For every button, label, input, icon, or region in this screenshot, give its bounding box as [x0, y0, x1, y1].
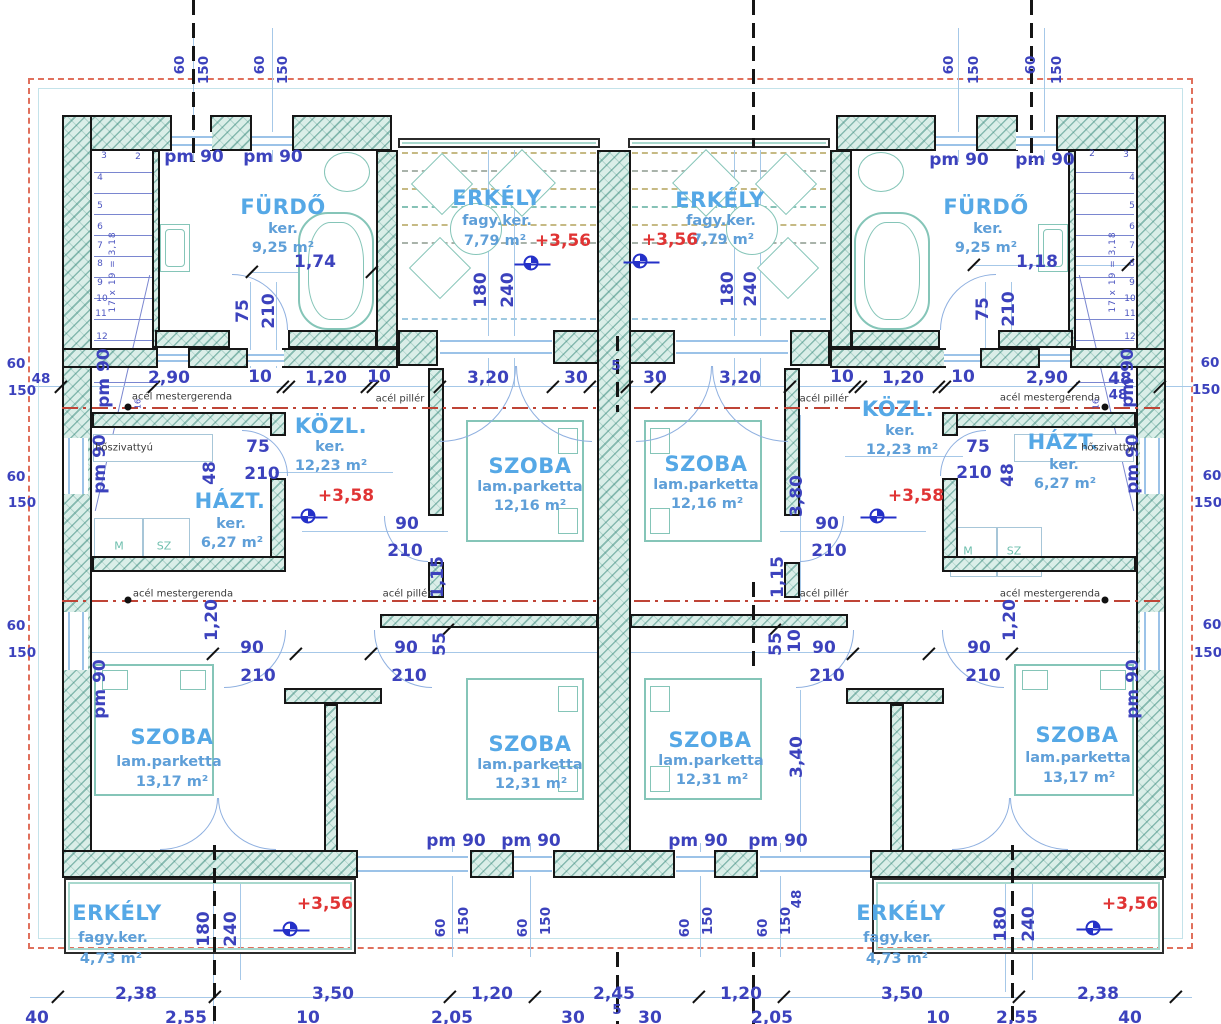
- wall: [282, 348, 398, 368]
- dim: 3,20: [719, 368, 761, 388]
- room-hazt-left-title: HÁZT.: [195, 489, 266, 513]
- door-dim: 90: [812, 638, 836, 658]
- section-axis: [1030, 0, 1033, 162]
- bed-pillow: [1022, 670, 1048, 690]
- beam-axis-dot: [125, 597, 132, 604]
- window-glass-line: [1144, 438, 1146, 494]
- stair-step-number: 10: [1124, 294, 1135, 304]
- wall: [470, 850, 514, 878]
- window-sill-height: pm 90: [164, 147, 223, 167]
- room-erkely-bl-sub: fagy.ker.: [78, 930, 148, 946]
- dim: 48: [998, 463, 1018, 487]
- stair-step-number: 9: [1129, 278, 1135, 288]
- room-szoba-ct-right-title: SZOBA: [665, 452, 748, 476]
- dim: 60: [677, 919, 693, 938]
- elevation-mark: +3,58: [318, 486, 374, 506]
- wall: [62, 850, 358, 878]
- dim: 150: [1194, 495, 1221, 511]
- section-axis: [752, 0, 755, 148]
- window: [64, 438, 88, 494]
- window-glass-line: [1016, 144, 1056, 146]
- stair-step-number: 12: [1124, 332, 1135, 342]
- wall: [870, 850, 1166, 878]
- appliance-washer: M: [114, 540, 124, 553]
- note-heat-pump: hőszivattyú: [95, 443, 153, 454]
- room-szoba-ct-right-floor: lam.parketta: [653, 477, 758, 493]
- dim: 240: [741, 271, 761, 307]
- wall: [188, 348, 248, 368]
- room-hazt-right-ker: ker.: [1049, 457, 1079, 473]
- dim: 150: [8, 495, 36, 511]
- dim: 240: [498, 272, 518, 308]
- window-glass-line: [68, 438, 70, 494]
- dim: 1,74: [294, 252, 336, 272]
- door-dim: 90: [815, 514, 839, 534]
- wall: [324, 704, 338, 854]
- dim: 150: [456, 907, 472, 935]
- dim: 3,20: [467, 368, 509, 388]
- room-szoba-bl-area: 13,17 m²: [136, 774, 208, 790]
- dim: 60: [1203, 617, 1221, 633]
- dim: 75: [233, 299, 253, 323]
- room-szoba-cb-right-floor: lam.parketta: [658, 753, 763, 769]
- room-kozl-right-title: KÖZL.: [862, 397, 934, 421]
- door-dim: 90: [967, 638, 991, 658]
- wall: [942, 412, 1136, 428]
- dim: 40: [1118, 1008, 1142, 1024]
- dim: 1,20: [1000, 599, 1020, 641]
- window: [514, 852, 552, 876]
- room-szoba-ct-left-floor: lam.parketta: [477, 479, 582, 495]
- window: [64, 612, 88, 670]
- appliance-washer: M: [963, 545, 973, 558]
- dim: 3,50: [881, 984, 923, 1004]
- stair-step-number: 11: [1124, 309, 1135, 319]
- door-dim: 90: [394, 638, 418, 658]
- dim: 150: [1049, 56, 1065, 84]
- floor-plan-canvas: FÜRDŐker.9,25 m²FÜRDŐker.9,25 m²ERKÉLYfa…: [0, 0, 1221, 1024]
- window-glass-line: [936, 144, 976, 146]
- window: [1140, 438, 1164, 494]
- stair-step-number: 5: [97, 201, 103, 211]
- elevation-benchmark-icon: [283, 922, 298, 937]
- bed-pillow: [650, 508, 670, 534]
- dim: 1,18: [1016, 252, 1058, 272]
- room-kozl-right-area: 12,23 m²: [866, 442, 938, 458]
- dim: 10: [830, 367, 854, 387]
- window-glass-line: [1040, 354, 1070, 356]
- window-glass-line: [514, 856, 552, 858]
- stair-step-number: 6: [1129, 222, 1135, 232]
- window-sill-height: pm 90: [243, 147, 302, 167]
- section-axis: [1011, 845, 1014, 1024]
- dim: 3,40: [787, 736, 807, 778]
- dim: 1,20: [471, 984, 513, 1004]
- stair-formula: 17 x 19 = 3,18: [108, 231, 118, 312]
- window-sill-height: pm 90: [929, 150, 988, 170]
- room-furdo-left-title: FÜRDŐ: [240, 195, 325, 219]
- dim: 60: [1203, 468, 1221, 484]
- stair-step-number: 3: [101, 151, 107, 161]
- wall: [714, 850, 758, 878]
- note-heat-pump: hőszivattyú: [1081, 443, 1139, 454]
- balcony-edge-dashed: [402, 318, 596, 320]
- stair-step-number: 11: [95, 309, 106, 319]
- room-erkely-topright-title: ERKÉLY: [675, 188, 764, 212]
- window-sill-height: pm 90: [501, 831, 560, 851]
- stair-step-number: 4: [1129, 173, 1135, 183]
- window-sill-height: pm 90: [1015, 150, 1074, 170]
- window: [440, 336, 552, 358]
- window-sill-height: pm 90: [90, 659, 110, 718]
- room-furdo-right-ker: ker.: [973, 221, 1003, 237]
- room-erkely-topleft-area: 7,79 m²: [464, 233, 526, 249]
- window-glass-line: [944, 354, 980, 356]
- door-dim: 210: [956, 463, 992, 483]
- balcony-rail: [398, 138, 600, 148]
- window: [936, 132, 976, 150]
- room-szoba-br-title: SZOBA: [1036, 723, 1119, 747]
- dim: 16: [134, 399, 143, 409]
- dim: 150: [8, 383, 36, 399]
- note-steel-column: acél pillér: [383, 589, 432, 600]
- dim: 2,05: [431, 1008, 473, 1024]
- window: [760, 852, 870, 876]
- window-glass-line: [1158, 438, 1160, 494]
- dim: 1,20: [305, 368, 347, 388]
- sink: [160, 224, 190, 272]
- dim: 10: [785, 629, 805, 653]
- dim: 150: [1194, 645, 1221, 661]
- bed-pillow: [180, 670, 206, 690]
- dim: 2,90: [1026, 368, 1068, 388]
- note-steel-beam: acél mestergerenda: [133, 589, 233, 600]
- window-glass-line: [158, 354, 188, 356]
- wall: [790, 330, 830, 366]
- room-furdo-right-area: 9,25 m²: [955, 240, 1017, 256]
- dim: 2,55: [996, 1008, 1038, 1024]
- room-hazt-left-ker: ker.: [216, 516, 246, 532]
- window-glass-line: [676, 870, 714, 872]
- room-erkely-topright-area: 7,79 m²: [692, 232, 754, 248]
- dim: 180: [471, 272, 491, 308]
- dim: 60: [1201, 355, 1220, 371]
- dim: 2,45: [593, 984, 635, 1004]
- wall: [376, 150, 398, 348]
- stair-step-number: 12: [96, 332, 107, 342]
- dim: 240: [1019, 906, 1039, 942]
- wall: [210, 115, 252, 151]
- window-glass-line: [1016, 136, 1056, 138]
- dim: 60: [433, 919, 449, 938]
- wall: [380, 614, 598, 628]
- window-glass-line: [440, 340, 552, 342]
- elevation-benchmark-icon: [870, 509, 885, 524]
- dim: 5: [612, 1002, 621, 1018]
- balcony-awning-line: [402, 152, 596, 154]
- room-szoba-bl-title: SZOBA: [131, 725, 214, 749]
- window: [1016, 132, 1056, 150]
- window-glass-line: [252, 144, 292, 146]
- dim: 60: [252, 56, 268, 75]
- bathtub: [854, 212, 930, 330]
- elevation-benchmark-icon: [1086, 921, 1101, 936]
- room-erkely-br-area: 4,73 m²: [866, 951, 928, 967]
- door-dim: 210: [391, 666, 427, 686]
- window-glass-line: [158, 360, 188, 362]
- stair-step-number: 8: [97, 259, 103, 269]
- wall: [836, 115, 936, 151]
- elevation-benchmark-icon: [524, 256, 539, 271]
- wall: [630, 614, 848, 628]
- room-erkely-bl-title: ERKÉLY: [72, 901, 161, 925]
- section-axis: [616, 336, 619, 412]
- window-glass-line: [760, 856, 870, 858]
- window-sill-height: pm 90: [748, 831, 807, 851]
- window-sill-height: pm 90: [668, 831, 727, 851]
- dim: 180: [991, 906, 1011, 942]
- window-glass-line: [1158, 612, 1160, 670]
- dim: 10: [926, 1008, 950, 1024]
- dim: 150: [538, 907, 554, 935]
- window-sill-height: pm 90: [1123, 659, 1143, 718]
- dim: 10: [296, 1008, 320, 1024]
- wall: [398, 330, 438, 366]
- wall: [155, 330, 230, 348]
- window-glass-line: [358, 856, 468, 858]
- dim: 2,90: [148, 368, 190, 388]
- wall: [998, 330, 1073, 348]
- window: [944, 350, 980, 366]
- dim: 60: [941, 56, 957, 75]
- wall: [942, 556, 1136, 572]
- window-glass-line: [1040, 360, 1070, 362]
- room-szoba-cb-right-area: 12,31 m²: [676, 772, 748, 788]
- dim: 210: [259, 293, 279, 329]
- dim: 3,80: [787, 475, 807, 517]
- wall: [62, 115, 92, 878]
- note-steel-column: acél pillér: [800, 589, 849, 600]
- elevation-mark: +3,56: [297, 894, 353, 914]
- appliance-dryer: SZ: [1007, 545, 1022, 558]
- wall: [1068, 150, 1076, 348]
- dim: 150: [700, 907, 716, 935]
- dim: 150: [8, 645, 36, 661]
- window-glass-line: [936, 136, 976, 138]
- dim: 40: [25, 1008, 49, 1024]
- window-glass-line: [440, 352, 552, 354]
- dim: 55: [430, 632, 450, 656]
- dim: 16: [1092, 399, 1101, 409]
- room-kozl-left-ker: ker.: [315, 439, 345, 455]
- dim: 60: [7, 356, 26, 372]
- room-szoba-cb-left-floor: lam.parketta: [477, 757, 582, 773]
- stair-step-number: 9: [97, 278, 103, 288]
- dim: 30: [643, 368, 667, 388]
- dim: 2,55: [165, 1008, 207, 1024]
- door-dim: 90: [395, 514, 419, 534]
- dim: 60: [1023, 56, 1039, 75]
- window-glass-line: [68, 612, 70, 670]
- elevation-benchmark-icon: [633, 254, 648, 269]
- section-axis: [192, 0, 195, 162]
- door-dim: 210: [965, 666, 1001, 686]
- room-szoba-cb-right-title: SZOBA: [669, 728, 752, 752]
- elevation-mark: +3,58: [888, 486, 944, 506]
- room-szoba-ct-right-area: 12,16 m²: [671, 496, 743, 512]
- bed-pillow: [558, 686, 578, 712]
- room-erkely-br-title: ERKÉLY: [856, 901, 945, 925]
- stair-step-number: 7: [97, 241, 103, 251]
- dim: 10: [951, 367, 975, 387]
- dim: 60: [172, 56, 188, 75]
- window-glass-line: [676, 340, 788, 342]
- room-szoba-ct-left-area: 12,16 m²: [494, 498, 566, 514]
- door-dim: 210: [811, 541, 847, 561]
- door-dim: 75: [966, 437, 990, 457]
- stair-step-number: 7: [1129, 241, 1135, 251]
- note-steel-column: acél pillér: [800, 394, 849, 405]
- stair-step-number: 5: [1129, 201, 1135, 211]
- dim: 5: [611, 358, 620, 374]
- dim: 30: [638, 1008, 662, 1024]
- bed-pillow: [650, 766, 670, 792]
- balcony-awning-line: [632, 152, 826, 154]
- window-glass-line: [1144, 612, 1146, 670]
- dim: 1,15: [768, 556, 788, 598]
- door-dim: 90: [240, 638, 264, 658]
- wall: [292, 115, 392, 151]
- wall: [830, 150, 852, 348]
- dim: 150: [966, 56, 982, 84]
- dim: 150: [196, 56, 212, 84]
- elevation-mark: +3,56: [642, 230, 698, 250]
- wall: [980, 348, 1040, 368]
- dim: 60: [7, 618, 26, 634]
- stair-step-number: 4: [97, 173, 103, 183]
- section-axis: [752, 582, 755, 674]
- stair-step-number: 2: [1089, 149, 1095, 159]
- window: [248, 350, 284, 366]
- stair-formula: 17 x 19 = 3,18: [1108, 231, 1118, 312]
- appliance-dryer: SZ: [157, 540, 172, 553]
- window: [358, 852, 468, 876]
- window-sill-height: pm 90: [1118, 348, 1138, 407]
- room-szoba-cb-left-title: SZOBA: [489, 732, 572, 756]
- wall: [553, 850, 675, 878]
- window-sill-height: pm 90: [426, 831, 485, 851]
- dim: 55: [766, 632, 786, 656]
- wall: [942, 412, 958, 436]
- window-glass-line: [358, 870, 468, 872]
- balcony-edge-dashed: [632, 318, 826, 320]
- room-erkely-br-sub: fagy.ker.: [863, 930, 933, 946]
- dim: 30: [564, 368, 588, 388]
- room-szoba-bl-floor: lam.parketta: [116, 754, 221, 770]
- wall: [976, 115, 1018, 151]
- wall: [1136, 115, 1166, 878]
- bed-pillow: [650, 686, 670, 712]
- room-kozl-left-title: KÖZL.: [295, 414, 367, 438]
- elevation-mark: +3,56: [535, 231, 591, 251]
- window-sill-height: pm 90: [94, 348, 114, 407]
- steel-beam-axis: [62, 600, 600, 602]
- door-dim: 210: [387, 541, 423, 561]
- dim: 1,20: [202, 599, 222, 641]
- room-szoba-br-floor: lam.parketta: [1025, 750, 1130, 766]
- beam-axis-dot: [1102, 404, 1109, 411]
- wall: [851, 330, 940, 348]
- dim: 60: [755, 919, 771, 938]
- dim: 180: [718, 271, 738, 307]
- beam-axis-dot: [125, 404, 132, 411]
- dim: 3,50: [312, 984, 354, 1004]
- dim: 150: [778, 907, 794, 935]
- dim: 30: [561, 1008, 585, 1024]
- dim: 75: [973, 297, 993, 321]
- note-steel-beam: acél mestergerenda: [1000, 393, 1100, 404]
- window-glass-line: [82, 612, 84, 670]
- note-steel-beam: acél mestergerenda: [1000, 589, 1100, 600]
- door-dim: 210: [244, 464, 280, 484]
- steel-beam-axis: [62, 407, 600, 409]
- dim: 10: [248, 367, 272, 387]
- wall: [284, 688, 382, 704]
- elevation-benchmark-icon: [301, 509, 316, 524]
- wall: [830, 348, 946, 368]
- wall: [597, 150, 631, 876]
- window: [676, 336, 788, 358]
- window-glass-line: [252, 136, 292, 138]
- door-dim: 75: [246, 437, 270, 457]
- note-steel-column: acél pillér: [376, 394, 425, 405]
- wall: [846, 688, 944, 704]
- door-dim: 210: [240, 666, 276, 686]
- wall: [890, 704, 904, 854]
- dim: 10: [367, 367, 391, 387]
- dim: 180: [194, 911, 214, 947]
- dim: 2,05: [751, 1008, 793, 1024]
- balcony-rail: [628, 138, 830, 148]
- dim: 2,38: [1077, 984, 1119, 1004]
- room-kozl-left-area: 12,23 m²: [295, 458, 367, 474]
- window-glass-line: [248, 360, 284, 362]
- room-szoba-br-area: 13,17 m²: [1043, 770, 1115, 786]
- room-erkely-topleft-title: ERKÉLY: [452, 186, 541, 210]
- steel-beam-axis: [634, 600, 1160, 602]
- toilet: [858, 152, 904, 192]
- window: [158, 350, 188, 366]
- door-dim: 210: [809, 666, 845, 686]
- wall: [92, 556, 286, 572]
- room-erkely-bl-area: 4,73 m²: [80, 951, 142, 967]
- dim: 150: [1192, 382, 1220, 398]
- toilet: [324, 152, 370, 192]
- stair-step-number: 6: [97, 222, 103, 232]
- room-erkely-topleft-sub: fagy.ker.: [462, 213, 532, 229]
- window: [1140, 612, 1164, 670]
- dim: 48: [789, 890, 805, 909]
- window-glass-line: [248, 354, 284, 356]
- wall: [92, 412, 286, 428]
- dim: 1,20: [882, 368, 924, 388]
- dim: 240: [221, 911, 241, 947]
- window-glass-line: [760, 870, 870, 872]
- room-kozl-right-ker: ker.: [885, 423, 915, 439]
- window-glass-line: [82, 438, 84, 494]
- dim: 210: [999, 291, 1019, 327]
- window: [1040, 350, 1070, 366]
